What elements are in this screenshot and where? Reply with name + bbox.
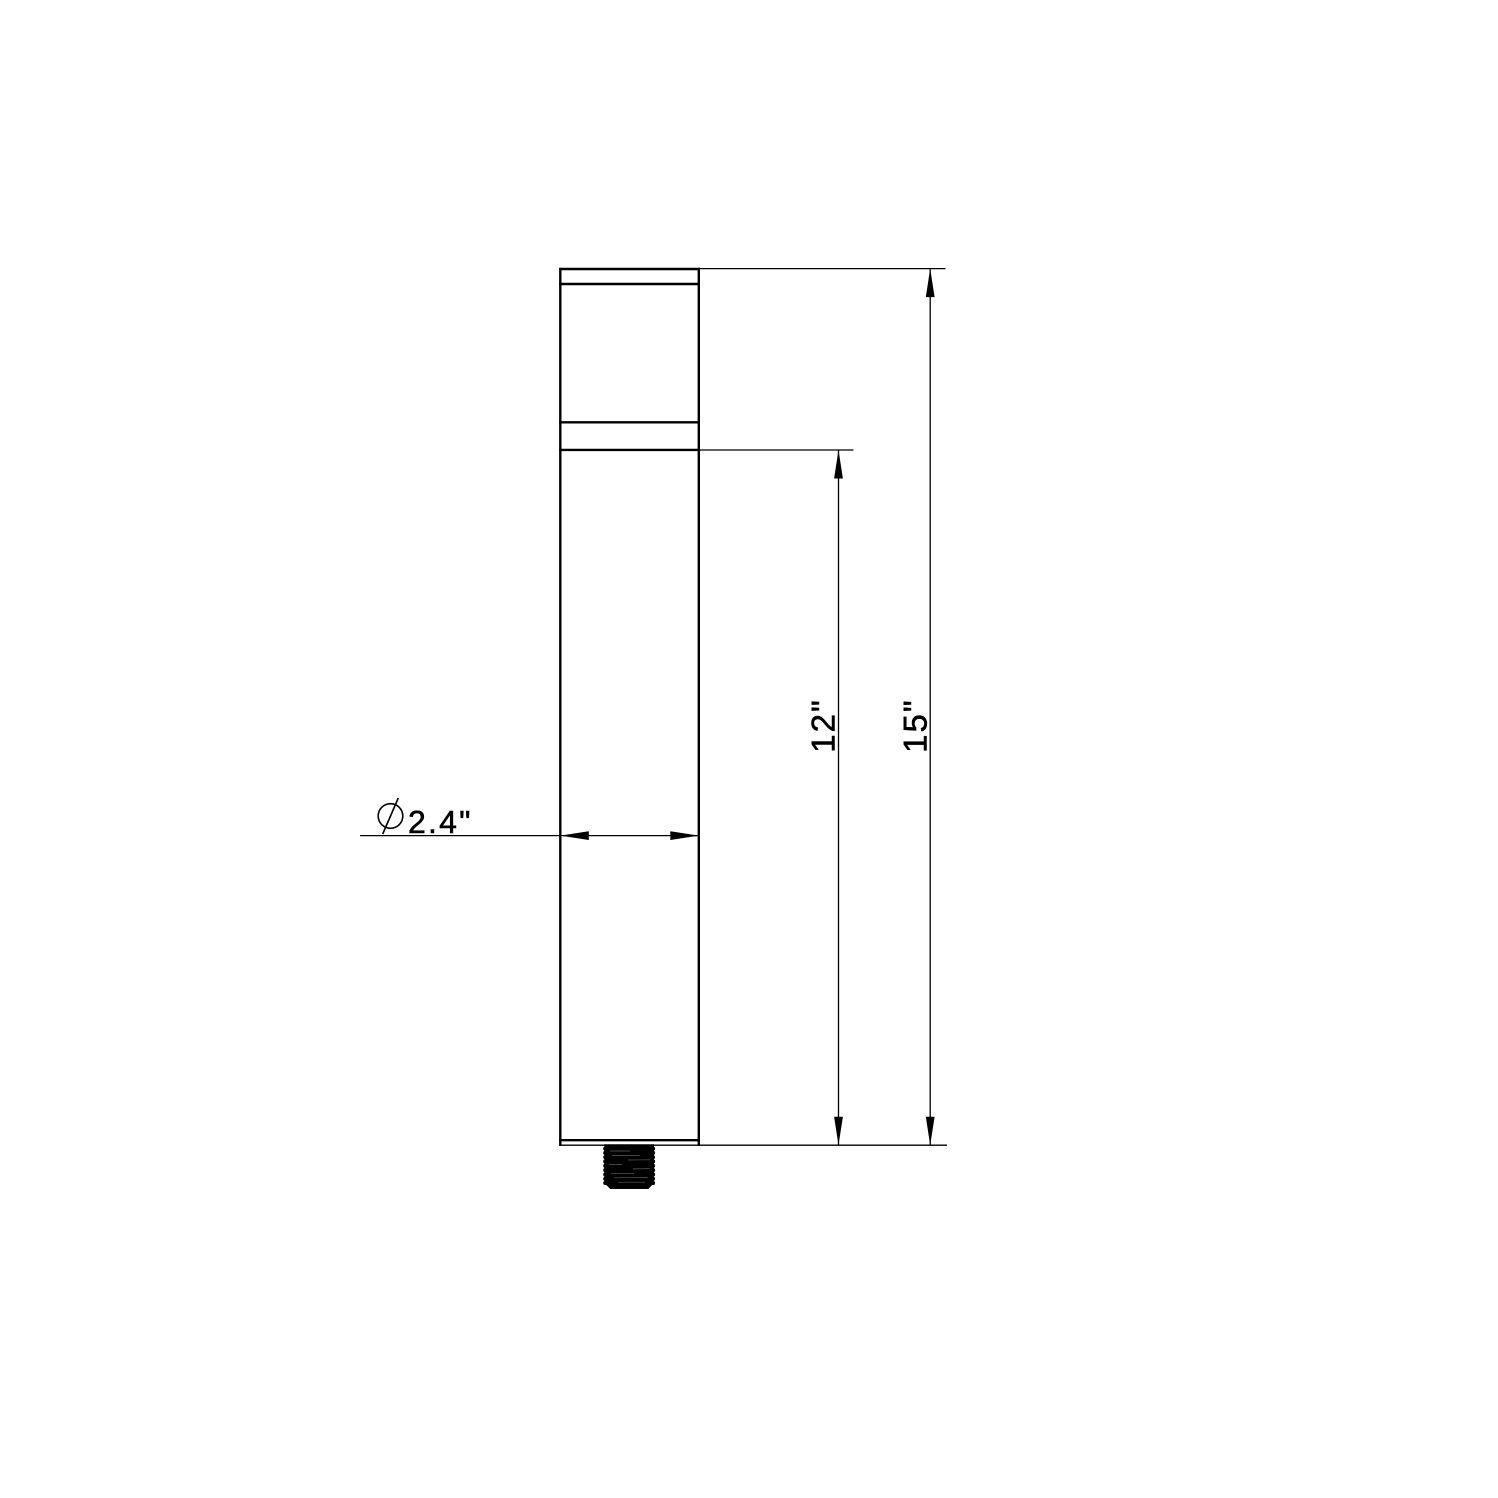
svg-text:2.4": 2.4"	[408, 804, 473, 840]
svg-text:12": 12"	[805, 698, 842, 752]
svg-text:15": 15"	[897, 698, 934, 752]
